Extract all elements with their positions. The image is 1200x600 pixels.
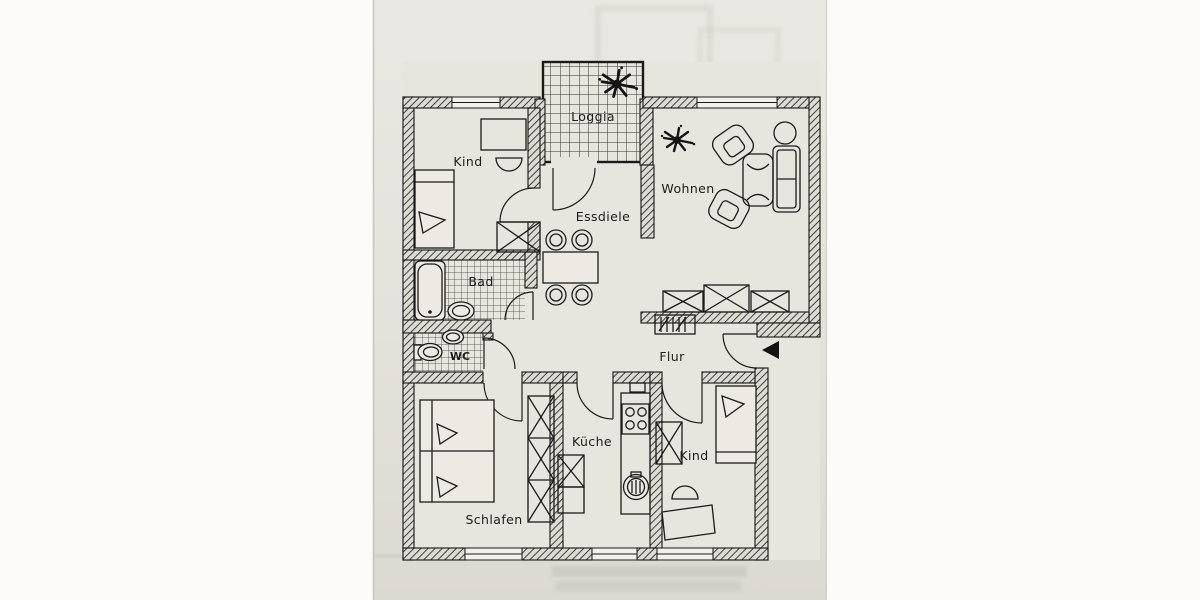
window bbox=[465, 548, 522, 560]
room-label-kind-top: Kind bbox=[453, 154, 482, 169]
wall-segment bbox=[522, 548, 592, 560]
room-label-bad: Bad bbox=[468, 274, 493, 289]
room-label-loggia: Loggia bbox=[571, 109, 615, 124]
wall-segment bbox=[403, 548, 465, 560]
wall-segment bbox=[650, 383, 662, 548]
window bbox=[452, 97, 500, 108]
wall-segment bbox=[550, 383, 563, 548]
wall-segment bbox=[522, 372, 563, 383]
room-label-wc: WC bbox=[450, 350, 470, 363]
dining-table bbox=[543, 252, 598, 283]
wall-segment bbox=[809, 97, 820, 323]
wall-segment bbox=[713, 548, 768, 560]
wall-segment bbox=[650, 372, 662, 383]
room-label-wohnen: Wohnen bbox=[661, 181, 714, 196]
wall-segment bbox=[403, 372, 483, 383]
room-label-kueche: Küche bbox=[572, 434, 612, 449]
floor-plan-drawing: Kind Loggia Wohnen Essdiele Bad WC Flur … bbox=[0, 0, 1200, 600]
drain bbox=[428, 310, 432, 314]
wall-segment bbox=[613, 372, 650, 383]
loggia-door-opening bbox=[551, 157, 597, 166]
wall-segment bbox=[643, 97, 697, 108]
window bbox=[697, 97, 777, 108]
wc-sink bbox=[443, 330, 464, 344]
room-label-essdiele: Essdiele bbox=[576, 209, 630, 224]
room-label-schlafen: Schlafen bbox=[465, 512, 522, 527]
wall-segment bbox=[637, 548, 657, 560]
window bbox=[592, 548, 637, 560]
wall-segment bbox=[563, 372, 577, 383]
room-label-flur: Flur bbox=[659, 349, 685, 364]
wall-segment bbox=[755, 368, 768, 560]
wall-segment bbox=[640, 99, 653, 165]
wall-segment bbox=[702, 372, 755, 383]
window bbox=[657, 548, 713, 560]
wall-segment bbox=[525, 252, 537, 288]
scanned-floorplan-page: Kind Loggia Wohnen Essdiele Bad WC Flur … bbox=[0, 0, 1200, 600]
wall-segment bbox=[500, 97, 540, 108]
wall-segment bbox=[757, 323, 820, 337]
room-label-kind-bottom: Kind bbox=[679, 448, 708, 463]
wall-segment bbox=[403, 97, 452, 108]
wall-segment bbox=[641, 165, 654, 238]
wall-segment bbox=[528, 108, 540, 188]
